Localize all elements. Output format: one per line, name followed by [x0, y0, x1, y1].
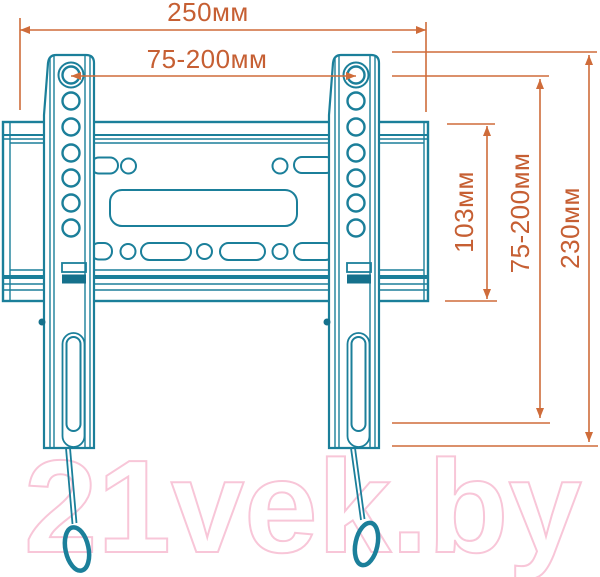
dim-label-vertical-hole-spacing: 75-200мм — [505, 153, 535, 274]
right-bracket-arm — [324, 55, 380, 448]
watermark-text: 21vek.by — [24, 433, 582, 577]
left-bracket-arm — [39, 55, 95, 448]
dim-label-bracket-height: 230мм — [555, 187, 585, 269]
plate-slot — [220, 243, 265, 260]
dim-label-overall-width: 250мм — [167, 0, 249, 27]
dim-label-plate-height: 103мм — [449, 171, 479, 253]
plate-hole — [197, 244, 212, 259]
plate-slot — [141, 243, 191, 260]
plate-center-slot — [110, 190, 297, 226]
dimension-annotations: 250мм 75-200мм 103мм 75-200мм 230мм — [20, 0, 598, 446]
wall-mount-diagram: 21vek.by — [0, 0, 600, 577]
plate-hole — [273, 244, 288, 259]
plate-hole — [121, 159, 136, 174]
wall-plate-slots — [91, 157, 334, 260]
dim-label-horizontal-hole-spacing: 75-200мм — [147, 44, 268, 74]
plate-hole — [273, 159, 288, 174]
plate-hole — [121, 244, 136, 259]
